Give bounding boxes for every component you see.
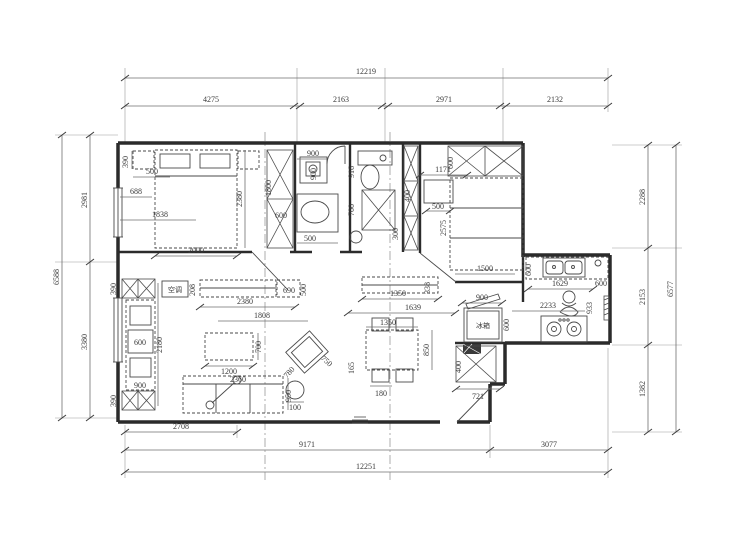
dim-b2-1500: 1500	[477, 264, 493, 273]
dim-din-180: 180	[375, 389, 387, 398]
dim-bath-900a: 900	[307, 149, 319, 158]
dim-b2-1171: 1171	[435, 165, 451, 174]
strip-box-3	[130, 358, 151, 377]
tv-cabinet	[200, 280, 276, 297]
armchair	[286, 331, 329, 373]
dim-liv-600: 600	[134, 338, 146, 347]
door-bedroom1	[252, 252, 288, 290]
dim-bath-500: 500	[304, 234, 316, 243]
dim-b1-600: 600	[275, 211, 287, 220]
dim-right: 2288 2153 1382 6577	[638, 142, 680, 435]
centerlines	[265, 132, 390, 480]
dim-liv-1808: 1808	[254, 311, 270, 320]
dim-liv-390a: 390	[109, 283, 118, 295]
dim-b1-390: 390	[121, 156, 130, 168]
dim-b2-2575: 2575	[439, 220, 448, 236]
dim-kit-1629: 1629	[552, 279, 568, 288]
kitchen: 600 1629 600 933 2233	[512, 257, 609, 342]
dim-right-2: 2153	[638, 289, 647, 305]
door-bath-arc	[327, 146, 345, 164]
lamp-base	[206, 401, 214, 409]
strip-box-1	[130, 306, 151, 325]
dim-top-overall: 12219	[356, 67, 376, 76]
nightstand-right	[238, 151, 259, 169]
dim-kit-600a: 600	[524, 264, 533, 276]
floor-drain	[350, 231, 362, 243]
fridge-label: 冰箱	[476, 321, 490, 330]
dim-kit-2233: 2233	[540, 301, 556, 310]
bed-2	[450, 178, 523, 270]
dim-b1-1800: 1800	[264, 180, 273, 196]
dim-din-1639: 1639	[405, 303, 421, 312]
dim-wc-916: 916	[347, 166, 356, 178]
dim-left-overall: 6588	[52, 269, 61, 285]
dim-right-overall: 6577	[666, 281, 675, 297]
dim-din-1350b: 1350	[380, 318, 396, 327]
dim-liv-700: 700	[254, 341, 263, 353]
dim-din-165: 165	[347, 362, 356, 374]
dim-liv-2360: 2360	[230, 375, 246, 384]
outer-walls	[118, 143, 610, 422]
burner-right	[567, 322, 581, 336]
dim-b1-500: 500	[146, 167, 158, 176]
extension-lines	[55, 68, 682, 478]
dim-liv-690: 690	[283, 286, 295, 295]
dim-liv-2380: 2380	[237, 297, 253, 306]
ac-label: 空调	[168, 285, 182, 294]
dim-entry-721: 721	[472, 392, 484, 401]
dim-top-1: 4275	[203, 95, 219, 104]
dim-right-3: 1382	[638, 381, 647, 397]
toilet-tank	[358, 151, 392, 165]
sink-bowl-left	[546, 261, 563, 274]
wardrobe-1	[267, 150, 293, 248]
floor-plan-canvas: 12219 4275 2163 2971 2132 6588 2981 3380…	[0, 0, 740, 555]
dim-liv-780: 780	[282, 365, 297, 380]
dining-table	[366, 330, 418, 370]
bed-1-pillow-left	[160, 154, 190, 168]
wc-room: 916 700 300	[347, 151, 400, 243]
dim-liv-750: 750	[319, 354, 334, 369]
burner-left	[547, 322, 561, 336]
dim-b1-2000: 2000	[188, 246, 204, 255]
dim-liv-2180: 2180	[155, 337, 164, 353]
dim-din-1350a: 1350	[390, 289, 406, 298]
dim-right-1: 2288	[638, 189, 647, 205]
dim-bath-900b: 900	[309, 168, 318, 180]
living-room: 390 390 600 900 2180 空调 208 690 500 2380…	[109, 279, 334, 413]
dim-top-2: 2163	[333, 95, 349, 104]
dim-left-1: 2981	[80, 192, 89, 208]
shelf-hatch-top	[122, 279, 155, 298]
bedroom-2: 600 1171 500 2575 1500	[416, 146, 523, 274]
person-figure	[560, 291, 578, 316]
chair-3	[372, 369, 389, 382]
desk	[424, 180, 453, 203]
dim-left-2: 3380	[80, 334, 89, 350]
dim-liv-208: 208	[188, 284, 197, 296]
dim-bottom-1: 9171	[299, 440, 315, 449]
shelf-hatch-bottom	[122, 391, 155, 410]
wardrobe-2	[448, 146, 523, 176]
dim-b1-1838: 1838	[152, 210, 168, 219]
gas-point	[595, 260, 601, 266]
bed-1-pillow-right	[200, 154, 230, 168]
dim-hall-400: 400	[403, 190, 412, 202]
dim-wc-700: 700	[347, 204, 356, 216]
window-left-bedroom	[113, 188, 123, 237]
chair-2	[396, 318, 413, 331]
hall-cabinet: 400	[403, 146, 418, 250]
toilet-bowl	[361, 165, 379, 189]
basin	[301, 201, 329, 223]
bathroom: 900 900 500	[297, 149, 338, 243]
sink-bowl-right	[565, 261, 582, 274]
dim-entry-400: 400	[454, 361, 463, 373]
dim-liv-500: 500	[299, 284, 308, 296]
dim-entry-600: 600	[502, 319, 511, 331]
dim-b1-2380: 2380	[235, 191, 244, 207]
dim-bottom-2: 3077	[541, 440, 557, 449]
dim-wc-300: 300	[391, 228, 400, 240]
coffee-table	[205, 333, 253, 360]
round-stool	[286, 381, 304, 399]
dim-din-338: 338	[423, 282, 432, 294]
dim-top-4: 2132	[547, 95, 563, 104]
kitchen-counter-top	[526, 257, 608, 279]
dim-b1-688: 688	[130, 187, 142, 196]
dim-din-850: 850	[422, 344, 431, 356]
bedroom-1: 390 500 688 1838 2000 2380 1800 600	[120, 150, 293, 259]
dim-top: 12219 4275 2163 2971 2132	[121, 67, 612, 109]
dim-kit-600b: 600	[595, 279, 607, 288]
dim-bottom: 2708 9171 3077 12251	[121, 422, 612, 475]
dining: 1350 338 1639 1350 850 165 180	[344, 277, 459, 398]
dim-liv-100: 100	[289, 403, 301, 412]
bed-1	[155, 150, 237, 248]
dim-liv-390b: 390	[109, 395, 118, 407]
dim-liv-900: 900	[134, 381, 146, 390]
dark-hatch-box	[463, 344, 481, 354]
shower-cabin	[362, 190, 395, 230]
floor-plan-drawing: 12219 4275 2163 2971 2132 6588 2981 3380…	[0, 0, 740, 555]
dim-b2-500: 500	[432, 202, 444, 211]
vanity-counter	[297, 194, 338, 232]
stove-unit	[541, 316, 587, 342]
dim-bottom-overall: 12251	[356, 462, 376, 471]
dim-kit-933: 933	[585, 302, 594, 314]
window-left-living	[113, 298, 123, 362]
dim-left: 6588 2981 3380	[52, 132, 94, 421]
chair-4	[396, 369, 413, 382]
dim-top-3: 2971	[436, 95, 452, 104]
